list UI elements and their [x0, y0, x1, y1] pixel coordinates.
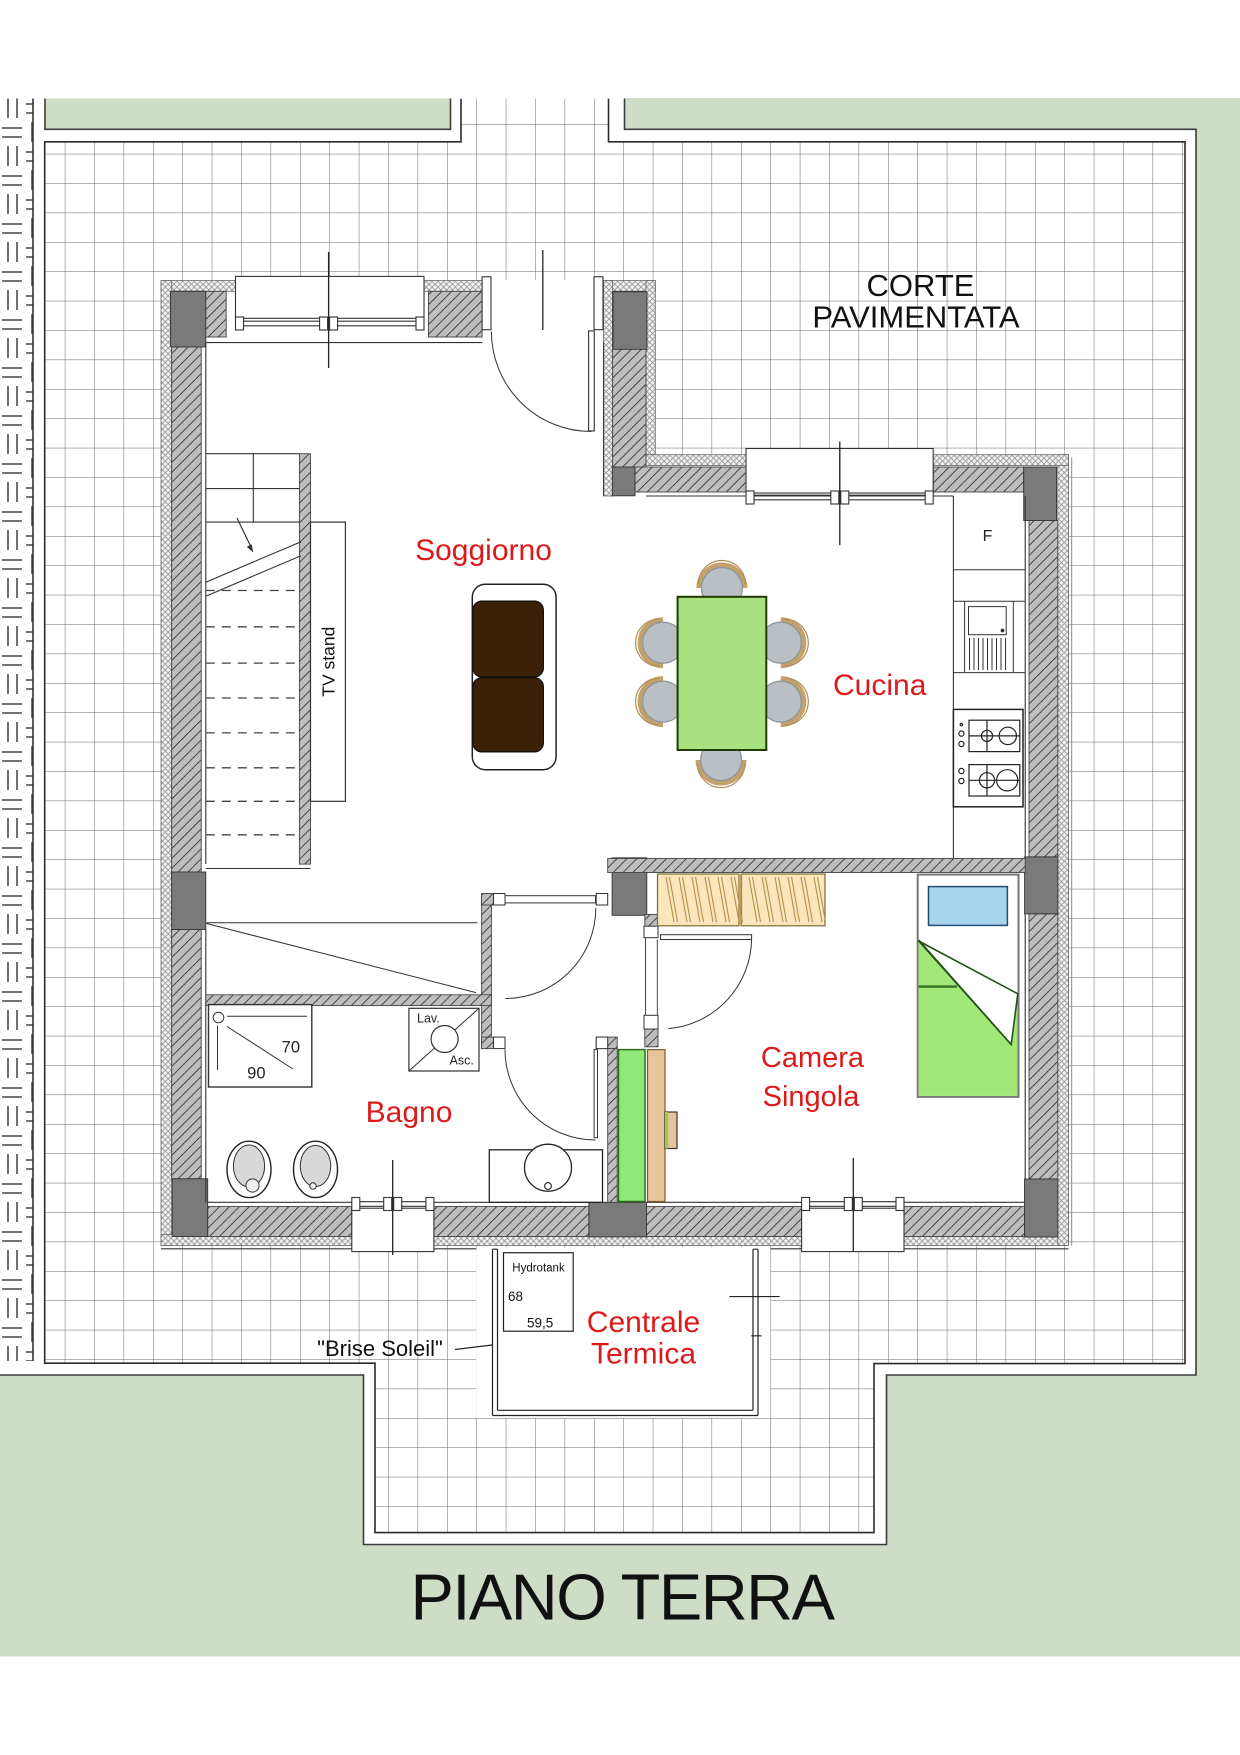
svg-text:Hydrotank: Hydrotank	[512, 1263, 565, 1275]
svg-text:Singola: Singola	[763, 1081, 861, 1113]
svg-text:Cucina: Cucina	[833, 669, 927, 702]
svg-text:59,5: 59,5	[527, 1316, 553, 1331]
svg-text:90: 90	[247, 1064, 265, 1082]
svg-text:Lav.: Lav.	[417, 1012, 440, 1026]
svg-text:PAVIMENTATA: PAVIMENTATA	[812, 300, 1020, 335]
svg-text:Bagno: Bagno	[366, 1096, 453, 1129]
svg-text:Soggiorno: Soggiorno	[415, 534, 552, 567]
svg-text:"Brise Soleil": "Brise Soleil"	[317, 1336, 443, 1361]
svg-text:Camera: Camera	[761, 1042, 865, 1074]
svg-text:70: 70	[282, 1039, 300, 1057]
svg-text:F: F	[983, 528, 993, 545]
svg-text:Asc.: Asc.	[450, 1054, 474, 1068]
svg-text:TV stand: TV stand	[319, 627, 339, 697]
svg-text:68: 68	[508, 1289, 523, 1304]
svg-text:Centrale: Centrale	[587, 1306, 700, 1339]
svg-text:CORTE: CORTE	[867, 268, 975, 303]
svg-text:Termica: Termica	[591, 1338, 696, 1371]
svg-text:PIANO TERRA: PIANO TERRA	[411, 1561, 836, 1634]
